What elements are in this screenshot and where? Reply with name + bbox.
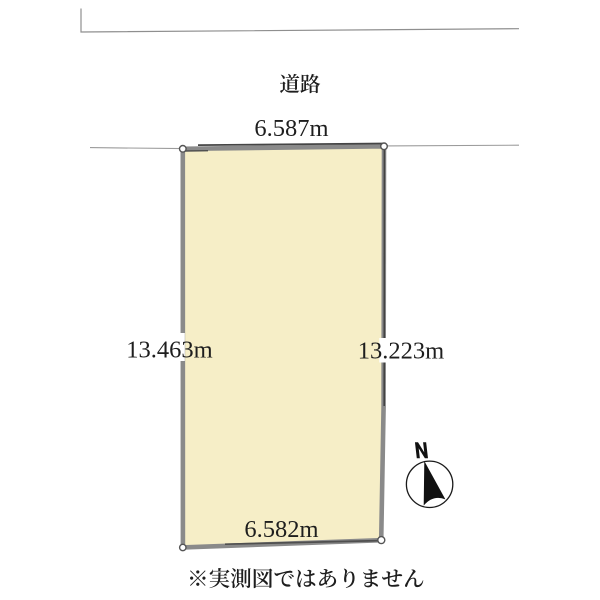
svg-text:13.463m: 13.463m	[126, 337, 212, 364]
svg-text:6.587m: 6.587m	[254, 115, 328, 142]
svg-text:6.582m: 6.582m	[244, 516, 318, 543]
svg-text:13.223m: 13.223m	[358, 338, 444, 365]
